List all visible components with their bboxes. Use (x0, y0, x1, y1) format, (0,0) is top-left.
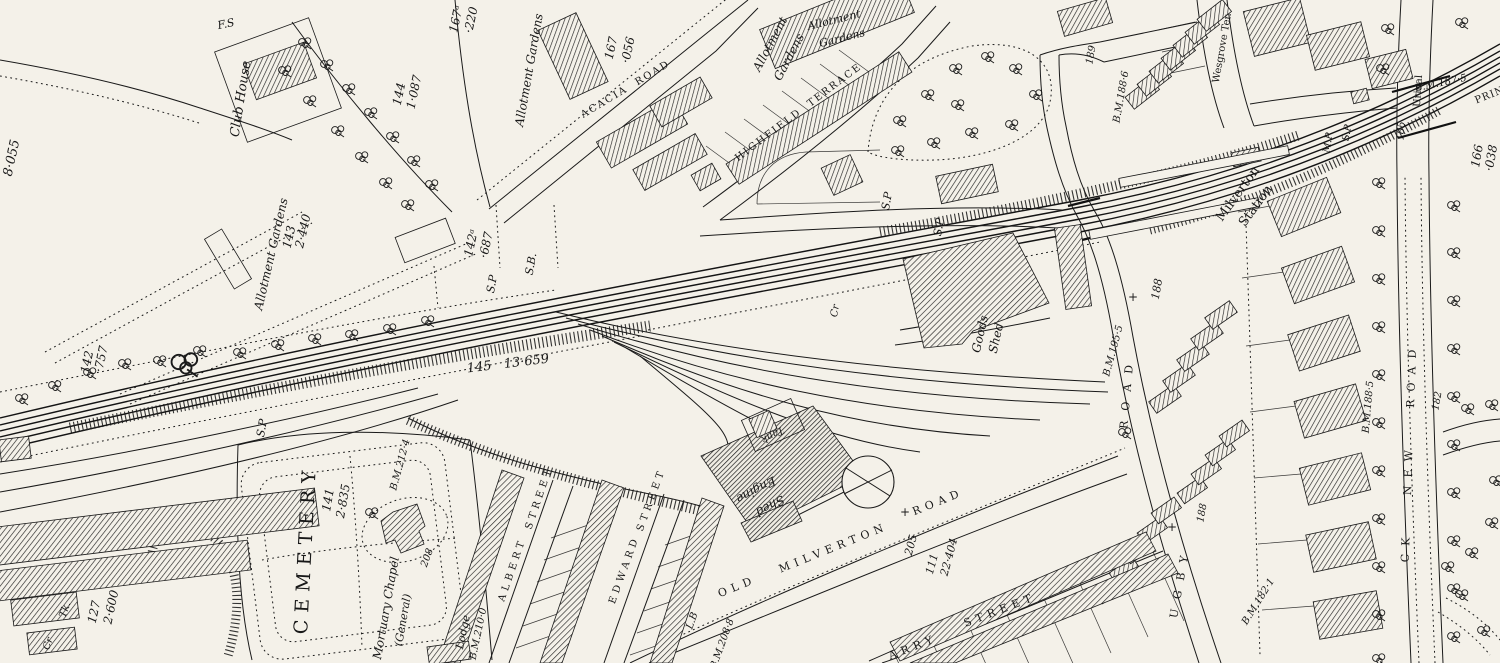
map-drawing (0, 0, 1500, 663)
turntable (842, 456, 894, 508)
map-canvas[interactable]: 8·055F.SClub House1441·087167ᵃ·220Allotm… (0, 0, 1500, 663)
